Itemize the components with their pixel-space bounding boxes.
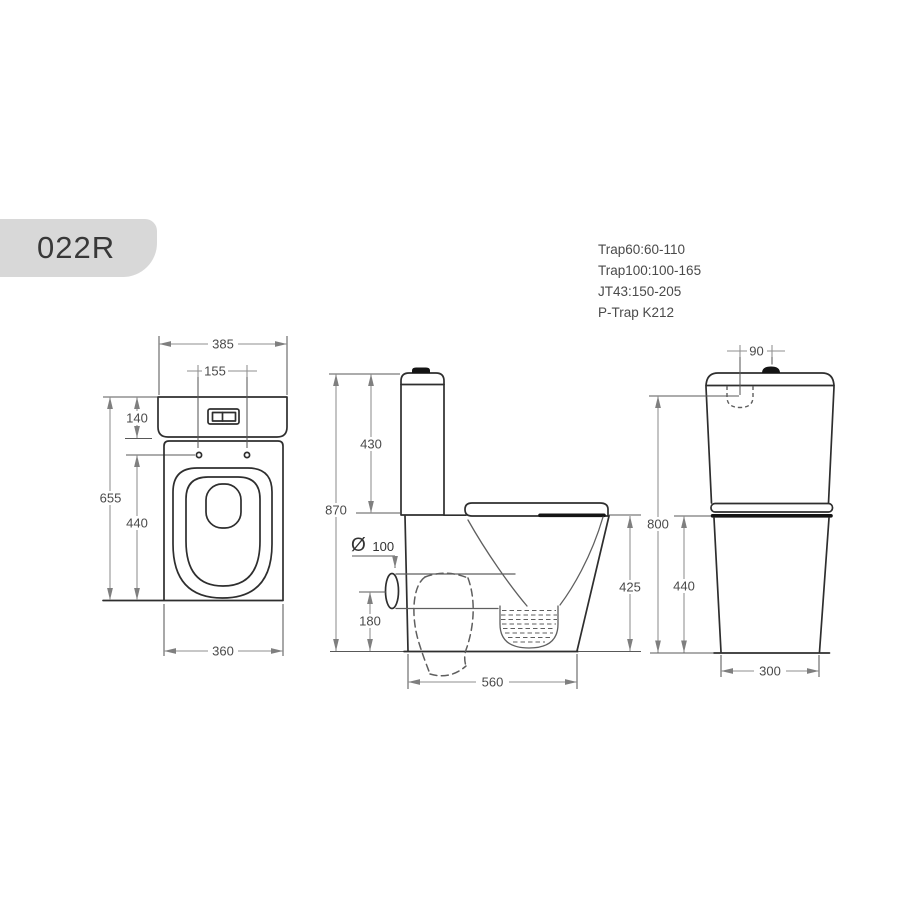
pan-back-edge xyxy=(577,516,609,651)
dim-label: 560 xyxy=(482,675,504,690)
dim-label: 360 xyxy=(212,644,234,659)
diameter-symbol: Ø xyxy=(351,535,366,556)
dim-label: 180 xyxy=(359,614,381,629)
seat-hinge-hole xyxy=(244,452,249,457)
technical-drawing: 385 155 140 65 xyxy=(0,0,900,900)
dim-label: 90 xyxy=(749,344,763,359)
dim-side-outlet-height: 180 xyxy=(355,592,386,651)
dim-label: 655 xyxy=(100,491,122,506)
dim-label: 430 xyxy=(360,437,382,452)
pan-front-edge xyxy=(405,516,408,651)
dim-back-base-width: 300 xyxy=(721,655,819,679)
water-level-hatch xyxy=(501,611,557,643)
push-button xyxy=(412,368,430,374)
dim-front-pan-height: 440 xyxy=(122,455,153,600)
seat-hinge-hole xyxy=(196,452,201,457)
seat-hinge-bar xyxy=(711,504,833,513)
dim-front-button-hole-spacing: 155 xyxy=(187,364,257,449)
dim-front-base-width: 360 xyxy=(164,604,283,659)
dim-front-overall-height: 655 xyxy=(95,397,126,600)
dim-side-overall-height: 870 xyxy=(320,374,352,651)
seat-inner-ring xyxy=(186,477,260,586)
bowl-interior-curve xyxy=(560,517,603,605)
dim-label: 425 xyxy=(619,580,641,595)
cistern-outline xyxy=(401,373,444,515)
push-button xyxy=(762,367,780,374)
spec-sheet: 022R Trap60:60-110 Trap100:100-165 JT43:… xyxy=(0,0,900,900)
dim-label: 100 xyxy=(372,539,394,554)
dim-label: 155 xyxy=(204,364,226,379)
pan-side-edge xyxy=(714,518,721,652)
dim-label: 385 xyxy=(212,337,234,352)
dim-back-inlet-height: 800 xyxy=(642,396,739,653)
dim-label: 800 xyxy=(647,517,669,532)
dim-front-cistern-height: 140 xyxy=(122,397,152,439)
dim-side-overall-depth: 560 xyxy=(408,654,577,690)
dim-label: 140 xyxy=(126,411,148,426)
front-view: 385 155 140 65 xyxy=(95,336,287,659)
pan-side-edge xyxy=(820,518,830,652)
dim-label: 440 xyxy=(126,516,148,531)
dim-label: 440 xyxy=(673,579,695,594)
dim-back-pan-height: 440 xyxy=(668,516,711,653)
side-view: Ø 100 180 870 430 xyxy=(320,368,646,690)
dual-flush-button xyxy=(208,409,239,424)
bowl-interior-curve xyxy=(468,520,527,606)
cistern-outline xyxy=(706,373,834,503)
dim-side-rim-height: 425 xyxy=(614,516,646,651)
back-view: 90 800 440 300 xyxy=(642,344,834,679)
dim-label: 300 xyxy=(759,664,781,679)
bowl-opening xyxy=(206,484,241,528)
dim-label: 870 xyxy=(325,503,347,518)
dim-side-cistern-height: 430 xyxy=(355,374,387,513)
outlet-pipe-opening xyxy=(386,574,399,609)
dim-side-outlet-diameter: Ø 100 xyxy=(351,535,395,568)
trapway-dashed xyxy=(414,573,473,676)
svg-text:Ø 100: Ø 100 xyxy=(351,535,394,556)
